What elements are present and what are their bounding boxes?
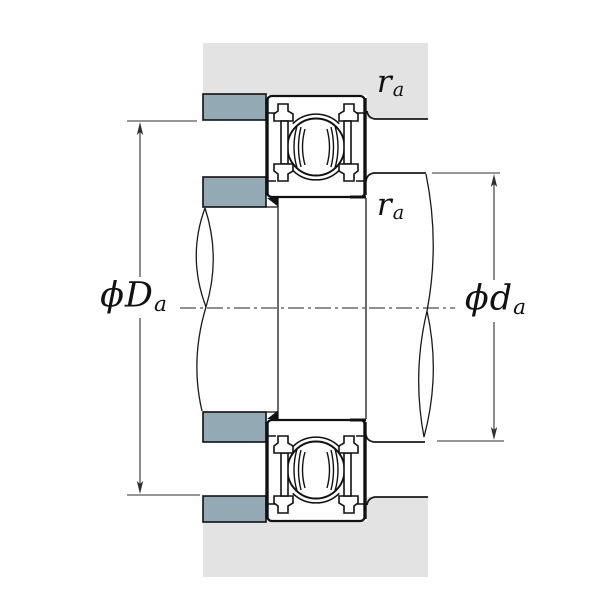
bearing-cross-section-bottom	[267, 411, 366, 522]
shaft-shoulder-bottom-surface	[366, 435, 425, 442]
shaft-spacer-bottom	[203, 412, 266, 442]
housing-shoulder-ring-bottom	[203, 496, 266, 522]
shaft-break-left	[196, 208, 213, 411]
shaft-break-right	[419, 174, 434, 437]
label-housing-abutment-diameter: ϕDa	[100, 278, 168, 315]
label-fillet-radius-housing: ra	[377, 67, 405, 99]
shaft-shoulder-top-surface	[366, 173, 426, 181]
bearing-diagram: ϕDa ϕda ra ra	[0, 0, 600, 600]
label-fillet-radius-shaft: ra	[377, 190, 405, 222]
housing-shoulder-ring-top	[203, 94, 266, 120]
bearing-cross-section-top	[267, 96, 366, 207]
label-shaft-abutment-diameter: ϕda	[465, 281, 527, 318]
shaft-spacer-top	[203, 177, 266, 207]
phi-symbol: ϕ	[465, 278, 490, 318]
phi-symbol: ϕ	[100, 275, 125, 315]
